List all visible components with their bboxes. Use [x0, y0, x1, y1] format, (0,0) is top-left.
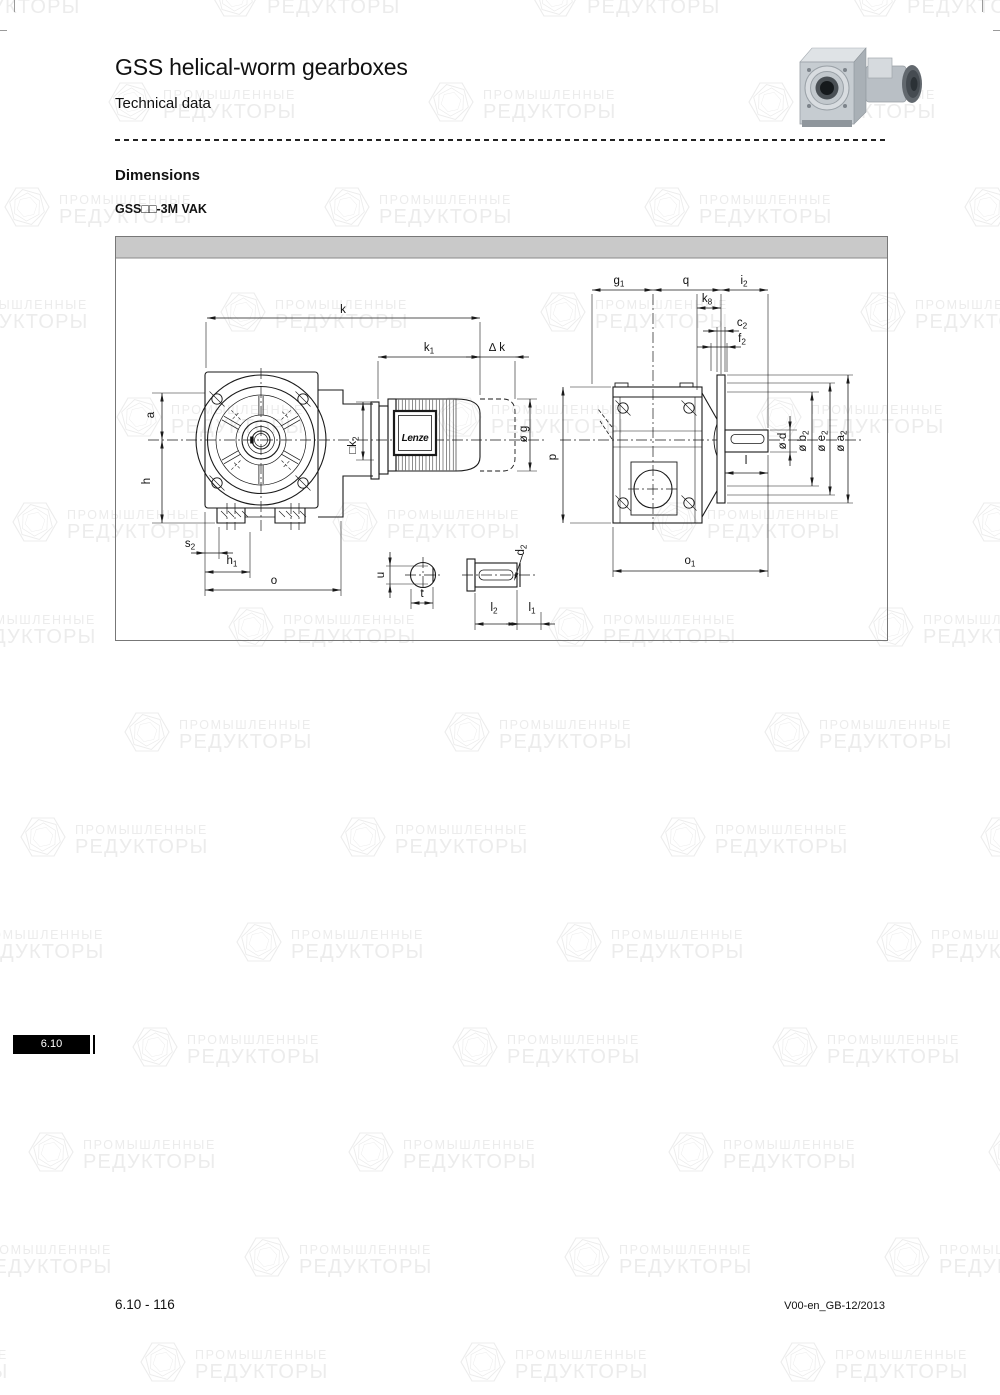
- watermark-hexagon-icon: [876, 915, 922, 969]
- watermark-line1: ПРОМЫШЛЕННЫЕ: [923, 614, 1000, 627]
- watermark: ПРОМЫШЛЕННЫЕРЕДУКТОРЫ: [660, 810, 849, 864]
- watermark: ПРОМЫШЛЕННЫЕРЕДУКТОРЫ: [964, 180, 1000, 234]
- dim-label-p: p: [547, 454, 559, 460]
- watermark: ПРОМЫШЛЕННЫЕРЕДУКТОРЫ: [212, 0, 401, 24]
- watermark-hexagon-icon: [780, 1335, 826, 1389]
- watermark-line2: РЕДУКТОРЫ: [923, 627, 1000, 648]
- dim-label-l: l: [745, 455, 748, 467]
- watermark-hexagon-icon: [532, 0, 578, 24]
- dim-label-k8: k8: [702, 293, 713, 307]
- chapter-tab-line: [93, 1035, 95, 1054]
- section-heading: Dimensions: [115, 167, 200, 184]
- watermark-line1: ПРОМЫШЛЕННЫЕ: [507, 1034, 641, 1047]
- watermark-hexagon-icon: [140, 1335, 186, 1389]
- watermark-hexagon-icon: [556, 915, 602, 969]
- watermark-line1: ПРОМЫШЛЕННЫЕ: [0, 614, 97, 627]
- watermark-hexagon-icon: [964, 180, 1000, 234]
- watermark: ПРОМЫШЛЕННЫЕРЕДУКТОРЫ: [972, 495, 1000, 549]
- watermark-line2: РЕДУКТОРЫ: [699, 207, 833, 228]
- watermark-line2: РЕДУКТОРЫ: [291, 942, 425, 963]
- dim-label-g1: g1: [614, 275, 625, 289]
- watermark-line1: ПРОМЫШЛЕННЫЕ: [0, 1349, 9, 1362]
- watermark-line1: ПРОМЫШЛЕННЫЕ: [195, 1349, 329, 1362]
- footer-doc-code: V00-en_GB-12/2013: [784, 1300, 885, 1312]
- watermark-hexagon-icon: [452, 1020, 498, 1074]
- crop-mark-top-left-h: [0, 30, 7, 31]
- watermark-line1: ПРОМЫШЛЕННЫЕ: [187, 1034, 321, 1047]
- watermark-hexagon-icon: [212, 0, 258, 24]
- watermark-line1: ПРОМЫШЛЕННЫЕ: [931, 929, 1000, 942]
- dim-label-c2: c2: [737, 317, 748, 331]
- watermark-hexagon-icon: [28, 1125, 74, 1179]
- watermark-line2: РЕДУКТОРЫ: [715, 837, 849, 858]
- watermark-line1: ПРОМЫШЛЕННЫЕ: [75, 824, 209, 837]
- watermark-line1: ПРОМЫШЛЕННЫЕ: [0, 299, 89, 312]
- watermark-line1: ПРОМЫШЛЕННЫЕ: [291, 929, 425, 942]
- watermark-line2: РЕДУКТОРЫ: [835, 1362, 969, 1383]
- watermark-line1: ПРОМЫШЛЕННЫЕ: [83, 1139, 217, 1152]
- dim-label-q: q: [683, 275, 689, 287]
- watermark-line1: ПРОМЫШЛЕННЫЕ: [827, 1034, 961, 1047]
- dim-label-u: u: [375, 572, 387, 578]
- watermark: ПРОМЫШЛЕННЫЕРЕДУКТОРЫ: [244, 1230, 433, 1284]
- watermark-line2: РЕДУКТОРЫ: [507, 1047, 641, 1068]
- watermark-line2: РЕДУКТОРЫ: [483, 102, 617, 123]
- dim-label-o: o: [271, 575, 277, 587]
- dim-label-k: k: [340, 304, 346, 316]
- dim-label-i2: i2: [740, 275, 748, 289]
- watermark: ПРОМЫШЛЕННЫЕРЕДУКТОРЫ: [780, 1335, 969, 1389]
- flange-bolt: [807, 104, 811, 108]
- watermark-line1: ПРОМЫШЛЕННЫЕ: [611, 929, 745, 942]
- watermark-line1: ПРОМЫШЛЕННЫЕ: [619, 1244, 753, 1257]
- watermark-hexagon-icon: [668, 1125, 714, 1179]
- dim-label-l2: l2: [490, 602, 498, 616]
- watermark-hexagon-icon: [124, 705, 170, 759]
- watermark-line2: РЕДУКТОРЫ: [611, 942, 745, 963]
- watermark: ПРОМЫШЛЕННЫЕРЕДУКТОРЫ: [0, 285, 89, 339]
- watermark-line2: РЕДУКТОРЫ: [827, 1047, 961, 1068]
- watermark: ПРОМЫШЛЕННЫЕРЕДУКТОРЫ: [236, 915, 425, 969]
- watermark: ПРОМЫШЛЕННЫЕРЕДУКТОРЫ: [0, 1230, 113, 1284]
- watermark-hexagon-icon: [460, 1335, 506, 1389]
- watermark: ПРОМЫШЛЕННЫЕРЕДУКТОРЫ: [556, 915, 745, 969]
- watermark: ПРОМЫШЛЕННЫЕРЕДУКТОРЫ: [348, 1125, 537, 1179]
- watermark-hexagon-icon: [972, 495, 1000, 549]
- dim-label-a2: ø a2: [835, 430, 849, 452]
- watermark-hexagon-icon: [764, 705, 810, 759]
- watermark-line2: РЕДУКТОРЫ: [931, 942, 1000, 963]
- flange-bolt: [807, 68, 811, 72]
- dim-label-f2: f2: [738, 333, 746, 347]
- watermark-line1: ПРОМЫШЛЕННЫЕ: [395, 824, 529, 837]
- watermark-line2: РЕДУКТОРЫ: [403, 1152, 537, 1173]
- crop-mark-top-left-v: [14, 0, 15, 12]
- dim-label-d2: d2: [515, 544, 529, 555]
- dim-label-h: h: [141, 478, 153, 484]
- watermark: ПРОМЫШЛЕННЫЕРЕДУКТОРЫ: [852, 0, 1000, 24]
- watermark: ПРОМЫШЛЕННЫЕРЕДУКТОРЫ: [20, 810, 209, 864]
- terminal-box: [868, 58, 892, 78]
- watermark-hexagon-icon: [660, 810, 706, 864]
- dim-label-k2: □k2: [347, 436, 361, 454]
- watermark: ПРОМЫШЛЕННЫЕРЕДУКТОРЫ: [428, 75, 617, 129]
- watermark-line1: ПРОМЫШЛЕННЫЕ: [515, 1349, 649, 1362]
- watermark: ПРОМЫШЛЕННЫЕРЕДУКТОРЫ: [988, 1125, 1000, 1179]
- watermark: ПРОМЫШЛЕННЫЕРЕДУКТОРЫ: [0, 1020, 1, 1074]
- watermark-line2: РЕДУКТОРЫ: [723, 1152, 857, 1173]
- dim-label-e2: ø e2: [816, 430, 830, 452]
- watermark: ПРОМЫШЛЕННЫЕРЕДУКТОРЫ: [460, 1335, 649, 1389]
- dim-label-l1: l1: [528, 602, 536, 616]
- watermark-hexagon-icon: [980, 810, 1000, 864]
- watermark-line1: ПРОМЫШЛЕННЫЕ: [379, 194, 513, 207]
- crop-mark-top-right-v: [982, 0, 983, 12]
- dim-label-b2: ø b2: [797, 430, 811, 452]
- watermark-line2: РЕДУКТОРЫ: [515, 1362, 649, 1383]
- watermark: ПРОМЫШЛЕННЫЕРЕДУКТОРЫ: [668, 1125, 857, 1179]
- crop-mark-top-right-h: [993, 30, 1000, 31]
- watermark-line1: ПРОМЫШЛЕННЫЕ: [835, 1349, 969, 1362]
- watermark-hexagon-icon: [644, 180, 690, 234]
- watermark-line2: РЕДУКТОРЫ: [187, 1047, 321, 1068]
- watermark-line2: РЕДУКТОРЫ: [939, 1257, 1000, 1278]
- watermark-line2: РЕДУКТОРЫ: [179, 732, 313, 753]
- watermark: ПРОМЫШЛЕННЫЕРЕДУКТОРЫ: [0, 915, 105, 969]
- watermark: ПРОМЫШЛЕННЫЕРЕДУКТОРЫ: [884, 1230, 1000, 1284]
- watermark-line2: РЕДУКТОРЫ: [819, 732, 953, 753]
- dim-label-k1: k1: [424, 342, 435, 356]
- watermark-line2: РЕДУКТОРЫ: [0, 1047, 1, 1068]
- flange-bolt: [843, 68, 847, 72]
- watermark: ПРОМЫШЛЕННЫЕРЕДУКТОРЫ: [772, 1020, 961, 1074]
- watermark-hexagon-icon: [324, 180, 370, 234]
- watermark-line1: ПРОМЫШЛЕННЫЕ: [499, 719, 633, 732]
- watermark: ПРОМЫШЛЕННЫЕРЕДУКТОРЫ: [132, 1020, 321, 1074]
- watermark-line1: ПРОМЫШЛЕННЫЕ: [0, 1244, 113, 1257]
- dim-label-d: ø d: [777, 433, 789, 450]
- dashed-divider: [115, 139, 885, 141]
- watermark: ПРОМЫШЛЕННЫЕРЕДУКТОРЫ: [324, 180, 513, 234]
- watermark-hexagon-icon: [340, 810, 386, 864]
- watermark-hexagon-icon: [132, 1020, 178, 1074]
- chapter-tab: 6.10: [13, 1035, 90, 1054]
- watermark: ПРОМЫШЛЕННЫЕРЕДУКТОРЫ: [340, 810, 529, 864]
- dim-label-delta-k: ∆ k: [489, 342, 505, 354]
- watermark: ПРОМЫШЛЕННЫЕРЕДУКТОРЫ: [980, 810, 1000, 864]
- watermark-line1: ПРОМЫШЛЕННЫЕ: [0, 1034, 1, 1047]
- motor-brand-label: Lenze: [402, 433, 430, 444]
- watermark-line2: РЕДУКТОРЫ: [395, 837, 529, 858]
- watermark: ПРОМЫШЛЕННЫЕРЕДУКТОРЫ: [124, 705, 313, 759]
- watermark-hexagon-icon: [444, 705, 490, 759]
- watermark-hexagon-icon: [772, 1020, 818, 1074]
- watermark-hexagon-icon: [4, 180, 50, 234]
- watermark-line2: РЕДУКТОРЫ: [0, 627, 97, 648]
- object-lines: [196, 372, 768, 591]
- watermark-line1: ПРОМЫШЛЕННЫЕ: [915, 299, 1000, 312]
- watermark-line1: ПРОМЫШЛЕННЫЕ: [723, 1139, 857, 1152]
- page-title: GSS helical-worm gearboxes: [115, 54, 408, 81]
- variant-label: GSS□□-3M VAK: [115, 202, 207, 216]
- dim-label-t: t: [420, 588, 424, 600]
- catalog-page: ПРОМЫШЛЕННЫЕРЕДУКТОРЫПРОМЫШЛЕННЫЕРЕДУКТО…: [0, 0, 1000, 1395]
- watermark-line2: РЕДУКТОРЫ: [0, 1362, 9, 1383]
- watermark-hexagon-icon: [236, 915, 282, 969]
- chapter-tab-label: 6.10: [41, 1038, 62, 1050]
- dim-label-g: ø g: [518, 426, 530, 443]
- watermark-line2: РЕДУКТОРЫ: [907, 0, 1000, 18]
- watermark-line1: ПРОМЫШЛЕННЫЕ: [179, 719, 313, 732]
- footer-page-number: 6.10 - 116: [115, 1297, 175, 1312]
- gearbox-foot: [802, 120, 852, 127]
- product-photo: [782, 36, 942, 131]
- watermark-line2: РЕДУКТОРЫ: [379, 207, 513, 228]
- dim-label-s2: s2: [185, 538, 196, 552]
- watermark-line2: РЕДУКТОРЫ: [0, 1257, 113, 1278]
- motor-endcap-hub: [911, 77, 918, 91]
- watermark: ПРОМЫШЛЕННЫЕРЕДУКТОРЫ: [532, 0, 721, 24]
- watermark-line1: ПРОМЫШЛЕННЫЕ: [715, 824, 849, 837]
- watermark-line1: ПРОМЫШЛЕННЫЕ: [403, 1139, 537, 1152]
- flange-bore: [820, 81, 834, 95]
- watermark: ПРОМЫШЛЕННЫЕРЕДУКТОРЫ: [644, 180, 833, 234]
- watermark: ПРОМЫШЛЕННЫЕРЕДУКТОРЫ: [444, 705, 633, 759]
- watermark-hexagon-icon: [20, 810, 66, 864]
- watermark-line2: РЕДУКТОРЫ: [195, 1362, 329, 1383]
- watermark-line1: ПРОМЫШЛЕННЫЕ: [699, 194, 833, 207]
- watermark-hexagon-icon: [988, 1125, 1000, 1179]
- dim-label-a: a: [145, 411, 157, 418]
- watermark-line2: РЕДУКТОРЫ: [619, 1257, 753, 1278]
- watermark: ПРОМЫШЛЕННЫЕРЕДУКТОРЫ: [140, 1335, 329, 1389]
- technical-drawing-svg: kk1∆ k□k2ø gahs2h1outd2l2l1g1qi2k8c2f2pø…: [115, 236, 888, 641]
- watermark-line1: ПРОМЫШЛЕННЫЕ: [0, 929, 105, 942]
- watermark: ПРОМЫШЛЕННЫЕРЕДУКТОРЫ: [452, 1020, 641, 1074]
- watermark-line2: РЕДУКТОРЫ: [587, 0, 721, 18]
- watermark-line1: ПРОМЫШЛЕННЫЕ: [819, 719, 953, 732]
- watermark-line2: РЕДУКТОРЫ: [83, 1152, 217, 1173]
- watermark-line2: РЕДУКТОРЫ: [0, 312, 89, 333]
- watermark-hexagon-icon: [12, 495, 58, 549]
- watermark-hexagon-icon: [564, 1230, 610, 1284]
- watermark: ПРОМЫШЛЕННЫЕРЕДУКТОРЫ: [0, 600, 97, 654]
- watermark-hexagon-icon: [884, 1230, 930, 1284]
- watermark: ПРОМЫШЛЕННЫЕРЕДУКТОРЫ: [0, 1335, 9, 1389]
- watermark: ПРОМЫШЛЕННЫЕРЕДУКТОРЫ: [564, 1230, 753, 1284]
- watermark-line2: РЕДУКТОРЫ: [915, 312, 1000, 333]
- watermark-hexagon-icon: [852, 0, 898, 24]
- watermark: ПРОМЫШЛЕННЫЕРЕДУКТОРЫ: [764, 705, 953, 759]
- watermark-line1: ПРОМЫШЛЕННЫЕ: [939, 1244, 1000, 1257]
- watermark-line1: ПРОМЫШЛЕННЫЕ: [299, 1244, 433, 1257]
- watermark-line2: РЕДУКТОРЫ: [0, 942, 105, 963]
- watermark-line2: РЕДУКТОРЫ: [0, 0, 81, 18]
- watermark-line2: РЕДУКТОРЫ: [75, 837, 209, 858]
- watermark-line2: РЕДУКТОРЫ: [499, 732, 633, 753]
- dim-label-o1: o1: [685, 555, 696, 569]
- watermark-hexagon-icon: [244, 1230, 290, 1284]
- watermark-line2: РЕДУКТОРЫ: [267, 0, 401, 18]
- watermark: ПРОМЫШЛЕННЫЕРЕДУКТОРЫ: [0, 0, 81, 24]
- watermark-hexagon-icon: [348, 1125, 394, 1179]
- dim-label-h1: h1: [227, 555, 238, 569]
- watermark: ПРОМЫШЛЕННЫЕРЕДУКТОРЫ: [28, 1125, 217, 1179]
- watermark: ПРОМЫШЛЕННЫЕРЕДУКТОРЫ: [876, 915, 1000, 969]
- watermark-hexagon-icon: [428, 75, 474, 129]
- watermark-line1: ПРОМЫШЛЕННЫЕ: [483, 89, 617, 102]
- flange-bolt: [843, 104, 847, 108]
- watermark-line2: РЕДУКТОРЫ: [299, 1257, 433, 1278]
- page-subtitle: Technical data: [115, 95, 211, 112]
